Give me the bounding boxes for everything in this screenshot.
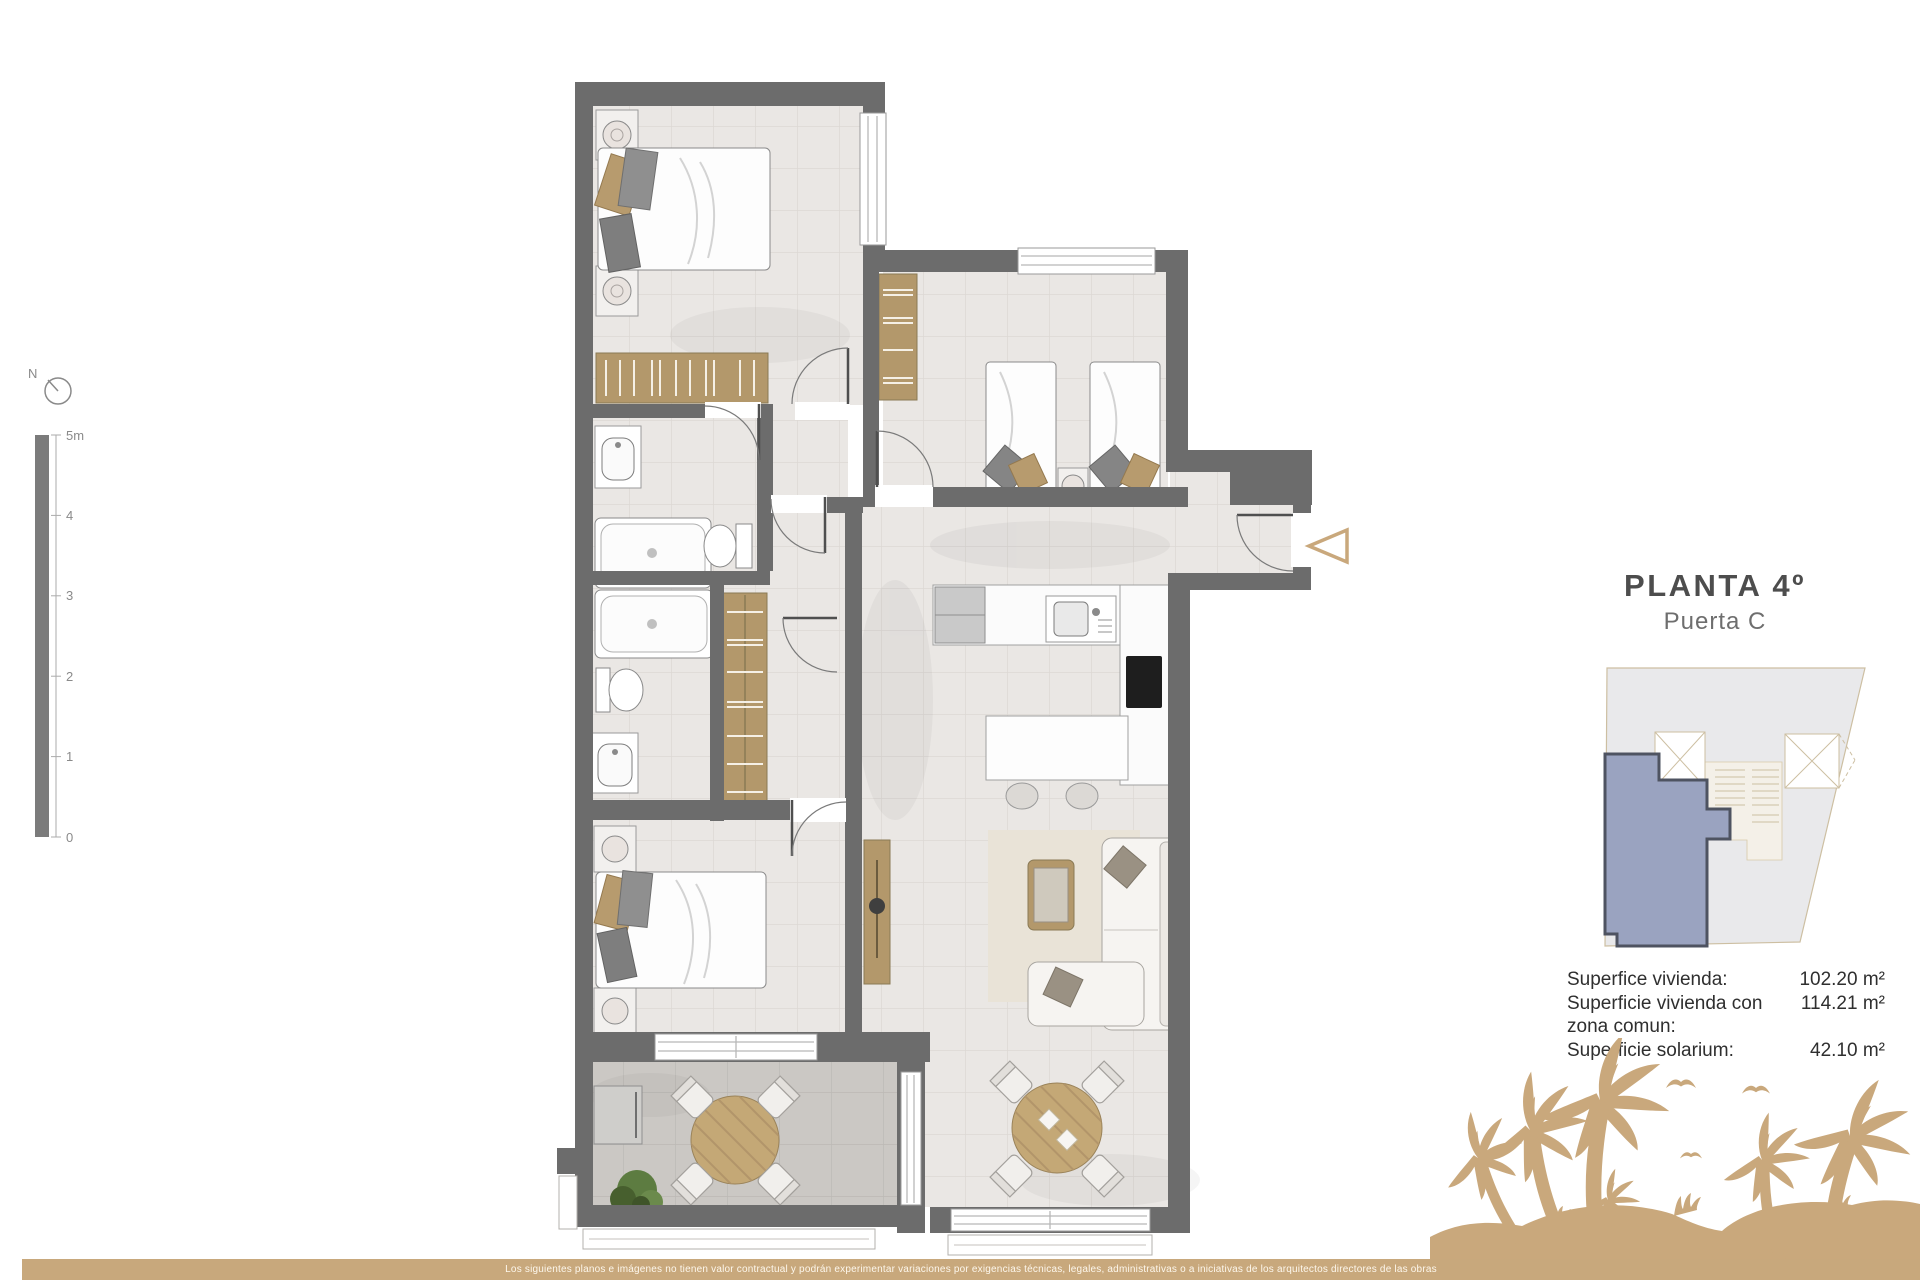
seagull-icon (1742, 1086, 1770, 1094)
surface-row: Superfice vivienda: 102.20 m² (1567, 968, 1885, 991)
drain (647, 619, 657, 629)
svg-text:1: 1 (66, 749, 73, 764)
svg-text:5m: 5m (66, 428, 84, 443)
coffee-table-glass (1034, 868, 1068, 922)
faucet (615, 442, 621, 448)
svg-text:4: 4 (66, 508, 73, 523)
kitchen-sink (1054, 602, 1088, 636)
scale-bar: 5m 4 3 2 1 0 (33, 425, 113, 850)
lamp (603, 277, 631, 305)
svg-text:0: 0 (66, 830, 73, 845)
window (860, 113, 886, 245)
window (1018, 248, 1155, 274)
page-title: PLANTA 4º (1555, 568, 1875, 604)
page-subtitle: Puerta C (1555, 608, 1875, 636)
building-key-plan (1597, 650, 1897, 950)
surface-value: 114.21 m² (1801, 992, 1885, 1038)
wardrobe (879, 274, 917, 400)
svg-text:3: 3 (66, 588, 73, 603)
compass-north-label: N (28, 366, 37, 381)
faucet (612, 749, 618, 755)
toilet-tank (596, 668, 610, 712)
island (986, 716, 1128, 780)
cooktop (1126, 656, 1162, 708)
toilet-tank (736, 524, 752, 568)
disclaimer-text: Los siguientes planos e imágenes no tien… (505, 1264, 1437, 1275)
bedroom-1-furniture (595, 110, 770, 403)
faucet (1092, 608, 1100, 616)
north-compass-icon: N (22, 358, 92, 418)
apartment-floorplan (540, 60, 1380, 1260)
lamp (602, 998, 628, 1024)
toilet-bowl (704, 525, 736, 567)
railing (559, 1176, 577, 1229)
surface-row: Superficie vivienda con zona comun: 114.… (1567, 992, 1885, 1038)
lamp (602, 836, 628, 862)
wardrobe (596, 353, 768, 403)
surface-label: Superfice vivienda: (1567, 968, 1772, 991)
compass-needle (48, 380, 58, 391)
wardrobe-rails (727, 612, 763, 792)
tv-mount (869, 898, 885, 914)
storage-cabinet (594, 1086, 642, 1144)
scale-bar-fill (35, 435, 49, 837)
corridor-floor (773, 405, 848, 820)
stool (1066, 783, 1098, 809)
disclaimer-bar: Los siguientes planos e imágenes no tien… (22, 1259, 1920, 1280)
title-block: PLANTA 4º Puerta C (1555, 568, 1875, 636)
drain (647, 548, 657, 558)
lamp (603, 121, 631, 149)
seagull-icon (1680, 1152, 1702, 1158)
palm-beach-graphic (1430, 1038, 1920, 1262)
grass-tuft (1674, 1193, 1701, 1216)
stool (1006, 783, 1038, 809)
floorplan-page: N 5m 4 3 2 1 0 (0, 0, 1920, 1280)
glazed-door (901, 1072, 921, 1205)
toilet-bowl (609, 669, 643, 711)
svg-text:2: 2 (66, 669, 73, 684)
scale-labels: 5m 4 3 2 1 0 (66, 428, 84, 845)
entrance-arrow-icon (1309, 530, 1347, 562)
surface-label: Superficie vivienda con zona comun: (1567, 992, 1772, 1038)
surface-value: 102.20 m² (1799, 968, 1885, 991)
seagull-icon (1666, 1080, 1696, 1088)
pillow-gray (617, 871, 652, 928)
